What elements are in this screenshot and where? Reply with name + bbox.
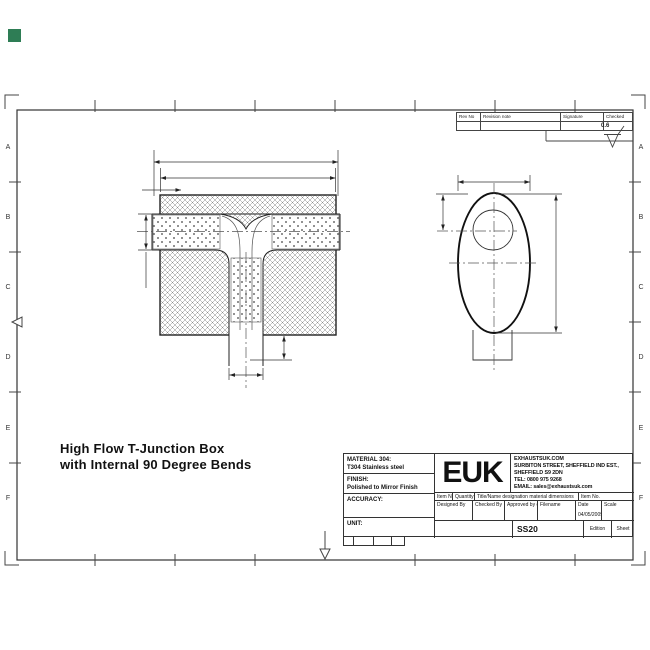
zone-letter-right-c: C [636,283,646,292]
zone-letter-left-f: F [3,494,13,503]
rev-row-empty-1 [457,122,481,131]
company-line-4: TEL: 0800 975 9268 [514,477,634,484]
company-line-5: EMAIL: sales@exhaustsuk.com [514,484,634,491]
zone-letter-right-e: E [636,424,646,433]
fold-mark-cells [343,537,405,546]
sheet-cell: Sheet [612,521,634,538]
rev-col-revno: Rev No [457,113,481,122]
zone-letter-right-f: F [636,494,646,503]
rev-row-empty-3 [561,122,604,131]
drawing-title-line2: with Internal 90 Degree Bends [60,457,251,473]
item-no2-header: Item No. [579,493,634,501]
quantity-header: Quantity [453,493,475,501]
date-cell: Date 04/05/2009 [576,501,602,522]
company-logo: EUK [435,454,511,493]
date-label: Date [578,502,589,508]
zone-letter-left-e: E [3,424,13,433]
zone-letter-left-c: C [3,283,13,292]
zone-letter-right-d: D [636,353,646,362]
drawing-number: SS20 [513,521,584,538]
approved-by-cell: Approved by date [505,501,538,522]
drawing-sheet: High Flow T-Junction Box with Internal 9… [0,0,650,650]
designed-by-cell: Designed By [435,501,473,522]
accuracy-cell: ACCURACY: [344,494,435,518]
rev-row-empty-2 [481,122,561,131]
rev-col-checked: Checked [604,113,632,122]
finish-label: FINISH: [347,476,434,484]
zone-letter-left-b: B [3,213,13,222]
unit-label: UNIT: [347,520,434,528]
unit-cell: UNIT: [344,518,435,538]
title-name-header: Title/Name designation material dimensio… [475,493,579,501]
section-view [137,150,350,388]
filename-cell: Filename [538,501,576,522]
item-no-header: Item No [435,493,453,501]
finish-cell: FINISH: Polished to Mirror Finish [344,474,435,494]
finish-value: Polished to Mirror Finish [347,484,434,492]
edition-cell: Edition [584,521,612,538]
zone-letter-left-a: A [3,143,13,152]
material-cell: MATERIAL 304: T304 Stainless steel [344,454,435,474]
scale-cell: Scale [602,501,634,522]
title-block: MATERIAL 304: T304 Stainless steel FINIS… [343,453,633,537]
drawing-linework [0,0,650,650]
rev-col-signature: Signature [561,113,604,122]
zone-letter-left-d: D [3,353,13,362]
company-address: EXHAUSTSUK.COM SURBITON STREET, SHEFFIEL… [511,454,634,493]
drawing-title: High Flow T-Junction Box with Internal 9… [60,441,251,473]
material-value: T304 Stainless steel [347,464,434,472]
zone-letter-right-a: A [636,143,646,152]
company-line-2: SURBITON STREET, SHEFFIELD IND EST., [514,463,634,470]
checked-by-cell: Checked By [473,501,505,522]
company-line-1: EXHAUSTSUK.COM [514,456,634,463]
accuracy-label: ACCURACY: [347,496,434,504]
title-block-empty-cell [435,521,513,538]
rev-col-note: Revision note [481,113,561,122]
drawing-title-line1: High Flow T-Junction Box [60,441,251,457]
end-view [436,175,562,371]
date-value: 04/05/2009 [578,512,602,519]
surface-finish-value: 0.6 [601,123,621,129]
company-line-3: SHEFFIELD S9 2DN [514,470,634,477]
end-view-dimensions [436,175,562,333]
zone-letter-right-b: B [636,213,646,222]
material-label: MATERIAL 304: [347,456,434,464]
